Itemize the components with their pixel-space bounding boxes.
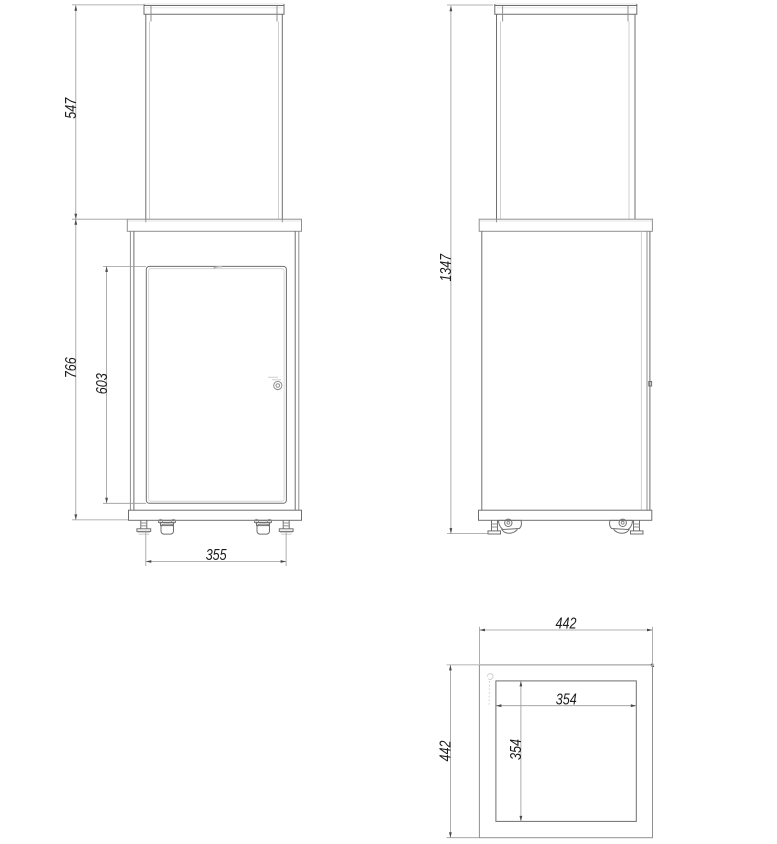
- svg-text:354: 354: [508, 739, 525, 760]
- svg-text:355: 355: [206, 547, 227, 564]
- svg-text:547: 547: [63, 97, 80, 119]
- svg-text:603: 603: [94, 373, 111, 394]
- svg-text:354: 354: [556, 692, 577, 709]
- svg-text:1347: 1347: [438, 253, 455, 282]
- svg-text:766: 766: [63, 357, 80, 378]
- svg-text:442: 442: [438, 740, 455, 761]
- svg-text:442: 442: [556, 616, 577, 633]
